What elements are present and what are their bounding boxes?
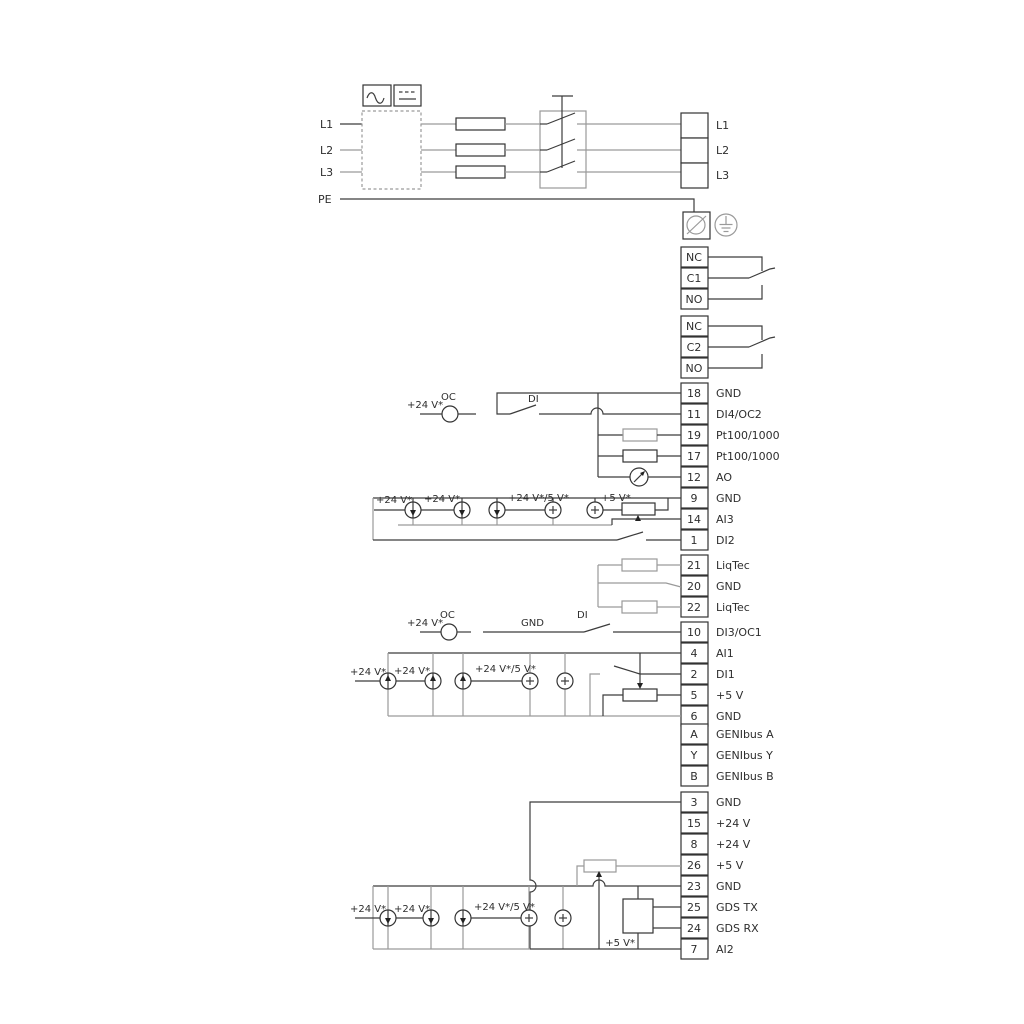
- relay1-nc-wire: [708, 257, 762, 271]
- power-output-label-l1: L1: [716, 119, 729, 132]
- terminal-11-num: 11: [687, 408, 701, 421]
- power-input-label-l1: L1: [320, 118, 333, 131]
- voltage-source-icon: [522, 673, 538, 689]
- switch-blade-l2: [547, 139, 575, 150]
- terminal-11-label: DI4/OC2: [716, 408, 762, 421]
- current-source-icon: [423, 910, 439, 926]
- terminal-genibus-b-num: B: [690, 770, 698, 783]
- label-5v: +5 V*: [601, 493, 631, 504]
- di1-gnd-stub: [590, 674, 600, 716]
- ai1-potentiometer: [623, 689, 657, 701]
- wire: [598, 583, 681, 587]
- gnd-rail-23: [373, 880, 681, 886]
- relay-1: NC C1 NO: [681, 247, 775, 309]
- terminal-15-num: 15: [687, 817, 701, 830]
- terminal-2-label: DI1: [716, 668, 735, 681]
- relay1-no-wire: [708, 285, 762, 299]
- terminal-l3: [681, 163, 708, 188]
- ai3-potentiometer: [622, 503, 655, 515]
- open-collector-icon: [441, 624, 457, 640]
- power-output-label-l3: L3: [716, 169, 729, 182]
- di2-switch-blade: [617, 532, 643, 540]
- wire-gnd-3: [530, 802, 681, 949]
- voltage-source-icon: [545, 502, 561, 518]
- pot-to-gnd: [603, 695, 623, 716]
- label-24v: +24 V*: [407, 618, 443, 629]
- wire-pe: [340, 199, 694, 212]
- terminal-15-label: +24 V: [716, 817, 751, 830]
- wiring-diagram: L1 L2 L3 PE: [0, 0, 1024, 1024]
- terminal-genibus-a-num: A: [690, 728, 698, 741]
- fuse-l2: [456, 144, 505, 156]
- pt100-resistor-1: [623, 429, 657, 441]
- terminal-4-label: AI1: [716, 647, 734, 660]
- terminal-1-label: DI2: [716, 534, 735, 547]
- terminal-3-label: GND: [716, 796, 741, 809]
- terminal-21-num: 21: [687, 559, 701, 572]
- terminal-genibus-y-num: Y: [690, 749, 698, 762]
- terminal-7-label: AI2: [716, 943, 734, 956]
- terminal-24-label: GDS RX: [716, 922, 759, 935]
- relay2-nc: NC: [686, 320, 702, 333]
- terminal-22-num: 22: [687, 601, 701, 614]
- dc-symbol-box: [394, 85, 421, 106]
- relay-2: NC C2 NO: [681, 316, 775, 378]
- terminal-26-label: +5 V: [716, 859, 744, 872]
- terminal-9-label: GND: [716, 492, 741, 505]
- terminal-6-num: 6: [691, 710, 698, 723]
- terminal-10-label: DI3/OC1: [716, 626, 762, 639]
- current-source-icon: [455, 673, 471, 689]
- liqtec-block: 21 20 22 LiqTec GND LiqTec: [598, 555, 750, 617]
- relay1-c1: C1: [687, 272, 702, 285]
- label-24v: +24 V*: [394, 666, 430, 677]
- terminal-17-num: 17: [687, 450, 701, 463]
- io-block-a: 18 11 19 17 12 9 14 1 GND DI4/OC2 Pt100/…: [373, 383, 780, 550]
- terminal-l1: [681, 113, 708, 138]
- terminal-17-label: Pt100/1000: [716, 450, 780, 463]
- power-input-label-l2: L2: [320, 144, 333, 157]
- io-block-c: 3 15 8 26 23 25 24 7 GND +24 V +24 V +5 …: [350, 792, 759, 959]
- relay2-nc-wire: [708, 326, 762, 340]
- terminal-5-label: +5 V: [716, 689, 744, 702]
- liqtec-sensor-1: [622, 559, 657, 571]
- power-input-label-pe: PE: [318, 193, 332, 206]
- di-label: DI: [577, 610, 588, 621]
- current-source-icon: [380, 910, 396, 926]
- switch-blade-l1: [547, 113, 575, 124]
- terminal-23-label: GND: [716, 880, 741, 893]
- gds-sensor-box: [623, 899, 653, 933]
- io-block-b: 10 4 2 5 6 A Y B DI3/OC1 AI1 DI1 +5 V GN…: [350, 610, 774, 786]
- terminal-18-label: GND: [716, 387, 741, 400]
- ai1-sensor-options: +24 V* +24 V* +24 V*/5 V*: [350, 653, 681, 716]
- terminal-14-label: AI3: [716, 513, 734, 526]
- terminal-20-num: 20: [687, 580, 701, 593]
- di4-switch-blade: [510, 405, 536, 414]
- relay2-c2: C2: [687, 341, 702, 354]
- label-24v-5v: +24 V*/5 V*: [508, 493, 569, 504]
- voltage-source-icon: [521, 910, 537, 926]
- ac-sine-icon: [367, 93, 384, 104]
- wiper-arrow: [635, 515, 641, 521]
- open-collector-icon: [442, 406, 458, 422]
- terminal-22-label: LiqTec: [716, 601, 750, 614]
- current-source-icon: [489, 502, 505, 518]
- terminal-10-num: 10: [687, 626, 701, 639]
- terminal-4-num: 4: [691, 647, 698, 660]
- pot-to-gnd: [655, 498, 668, 510]
- pot-to-gnd: [577, 866, 584, 886]
- current-source-icon: [455, 910, 471, 926]
- wire-di4: [539, 408, 681, 414]
- terminal-9-num: 9: [691, 492, 698, 505]
- label-24v: +24 V*: [350, 667, 386, 678]
- terminal-21-label: LiqTec: [716, 559, 750, 572]
- terminal-12-num: 12: [687, 471, 701, 484]
- current-source-icon: [380, 673, 396, 689]
- terminal-2-num: 2: [691, 668, 698, 681]
- ai3-sensor-options: +24 V* +24 V* +24 V*/5 V* +5 V*: [373, 493, 681, 540]
- fuse-l1: [456, 118, 505, 130]
- di1-switch-blade: [614, 666, 640, 674]
- gnd-rail-18: [497, 393, 681, 414]
- terminal-25-num: 25: [687, 901, 701, 914]
- terminal-7-num: 7: [691, 943, 698, 956]
- terminal-12-label: AO: [716, 471, 732, 484]
- current-source-icon: [405, 502, 421, 518]
- terminal-24-num: 24: [687, 922, 701, 935]
- voltage-source-icon: [587, 502, 603, 518]
- power-input-label-l3: L3: [320, 166, 333, 179]
- terminal-14-num: 14: [687, 513, 701, 526]
- terminal-1-num: 1: [691, 534, 698, 547]
- power-section: L1 L2 L3 PE: [318, 85, 737, 239]
- gnd-label: GND: [521, 618, 544, 629]
- terminal-19-num: 19: [687, 429, 701, 442]
- fuse-l3: [456, 166, 505, 178]
- label-24v: +24 V*: [350, 904, 386, 915]
- main-switch: [540, 96, 586, 188]
- terminal-6-label: GND: [716, 710, 741, 723]
- terminal-genibus-y-label: GENIbus Y: [716, 749, 773, 762]
- terminal-20-label: GND: [716, 580, 741, 593]
- pt100-resistor-2: [623, 450, 657, 462]
- terminal-25-label: GDS TX: [716, 901, 758, 914]
- current-source-icon: [454, 502, 470, 518]
- voltage-source-icon: [557, 673, 573, 689]
- terminal-genibus-b-label: GENIbus B: [716, 770, 774, 783]
- wire-ai3: [612, 519, 681, 525]
- current-source-icon: [425, 673, 441, 689]
- relay2-no-wire: [708, 354, 762, 368]
- relay1-nc: NC: [686, 251, 702, 264]
- label-5v: +5 V*: [605, 938, 635, 949]
- voltage-source-icon: [555, 910, 571, 926]
- oc-label: OC: [440, 610, 455, 621]
- oc-label: OC: [441, 392, 456, 403]
- relay2-no: NO: [686, 362, 703, 375]
- liqtec-sensor-2: [622, 601, 657, 613]
- di-label: DI: [528, 394, 539, 405]
- ai2-potentiometer: [584, 860, 616, 872]
- power-output-label-l2: L2: [716, 144, 729, 157]
- terminal-3-num: 3: [691, 796, 698, 809]
- terminal-5-num: 5: [691, 689, 698, 702]
- di3-switch-blade: [584, 624, 610, 632]
- ac-symbol-box: [363, 85, 391, 106]
- label-24v: +24 V*: [424, 494, 460, 505]
- terminal-26-num: 26: [687, 859, 701, 872]
- wiper-arrow: [637, 683, 643, 689]
- terminal-19-label: Pt100/1000: [716, 429, 780, 442]
- terminal-genibus-a-label: GENIbus A: [716, 728, 774, 741]
- terminal-18-num: 18: [687, 387, 701, 400]
- switch-blade-l3: [547, 161, 575, 172]
- terminal-8-num: 8: [691, 838, 698, 851]
- filter-box: [362, 111, 421, 189]
- terminal-8-label: +24 V: [716, 838, 751, 851]
- terminal-23-num: 23: [687, 880, 701, 893]
- terminal-l2: [681, 138, 708, 163]
- relay1-no: NO: [686, 293, 703, 306]
- label-24v: +24 V*: [407, 400, 443, 411]
